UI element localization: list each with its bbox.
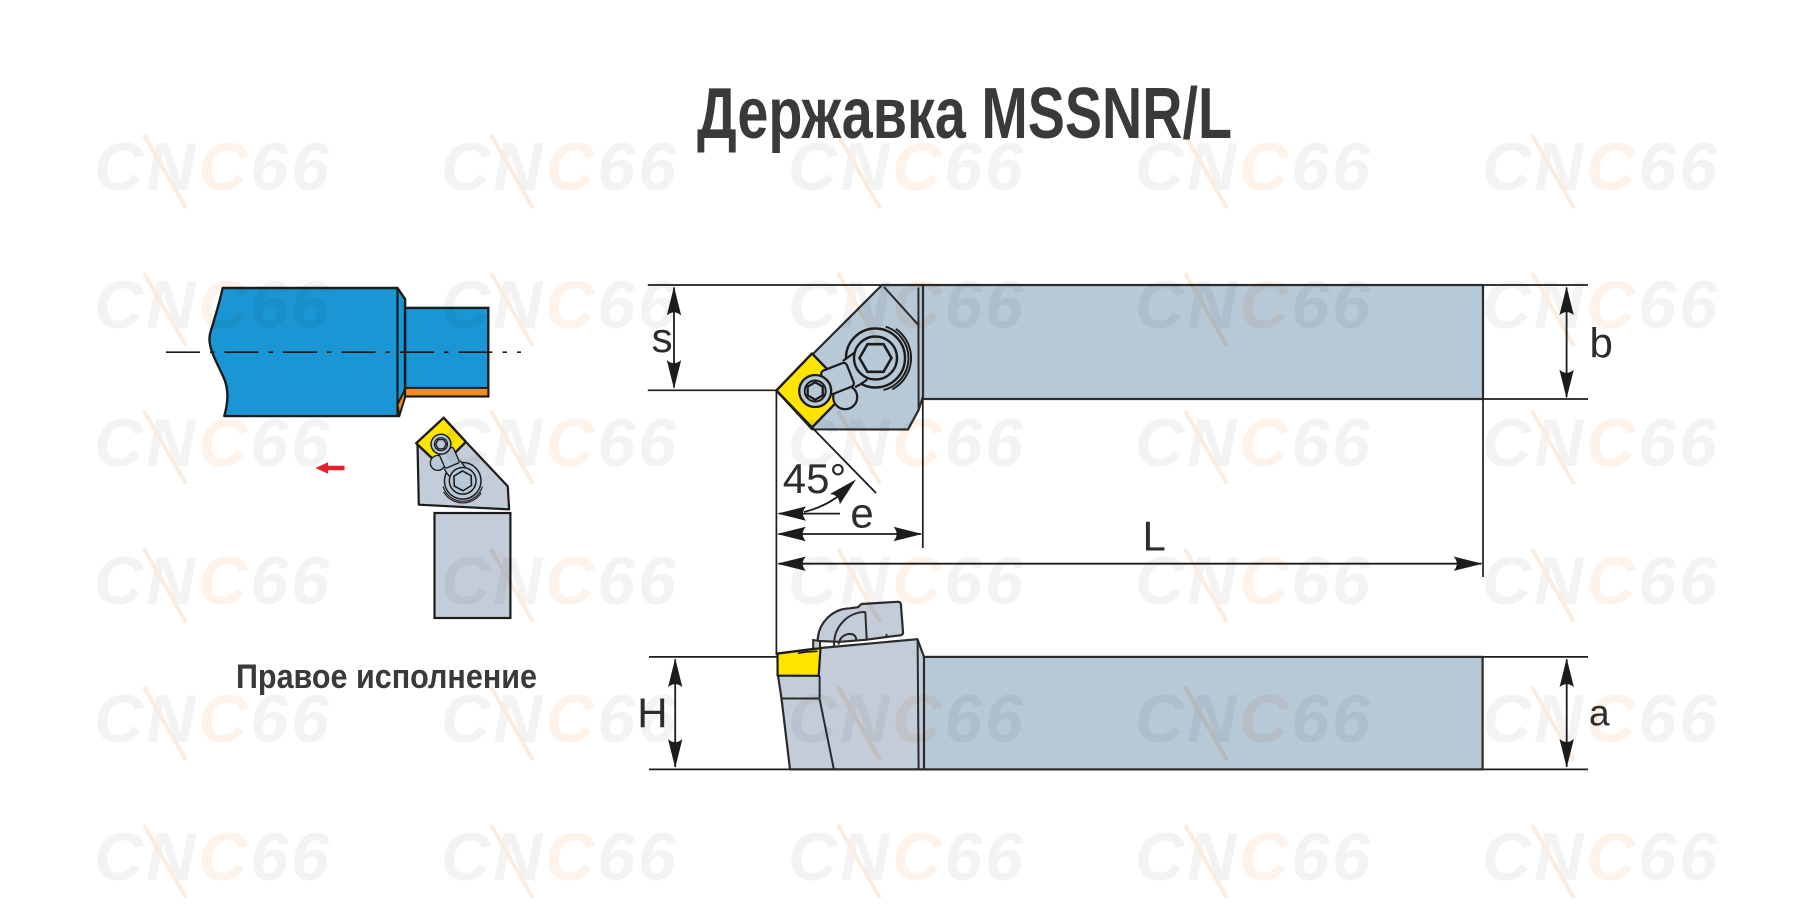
svg-text:CNC66: CNC66 [788, 681, 1026, 757]
svg-text:CNC66: CNC66 [441, 405, 679, 481]
svg-text:CNC66: CNC66 [1135, 681, 1373, 757]
svg-text:CNC66: CNC66 [94, 819, 332, 895]
svg-text:CNC66: CNC66 [788, 267, 1026, 343]
svg-text:CNC66: CNC66 [788, 543, 1026, 619]
svg-text:CNC66: CNC66 [1135, 543, 1373, 619]
svg-text:CNC66: CNC66 [1482, 405, 1720, 481]
svg-text:CNC66: CNC66 [1135, 819, 1373, 895]
svg-text:CNC66: CNC66 [1482, 129, 1720, 205]
svg-text:CNC66: CNC66 [1482, 681, 1720, 757]
svg-text:CNC66: CNC66 [1135, 267, 1373, 343]
svg-text:CNC66: CNC66 [788, 405, 1026, 481]
svg-text:CNC66: CNC66 [94, 129, 332, 205]
svg-text:CNC66: CNC66 [441, 267, 679, 343]
svg-text:CNC66: CNC66 [94, 681, 332, 757]
svg-text:CNC66: CNC66 [788, 819, 1026, 895]
svg-text:CNC66: CNC66 [1135, 405, 1373, 481]
svg-text:CNC66: CNC66 [94, 405, 332, 481]
svg-text:CNC66: CNC66 [94, 543, 332, 619]
svg-text:CNC66: CNC66 [1482, 819, 1720, 895]
svg-text:CNC66: CNC66 [788, 129, 1026, 205]
svg-text:CNC66: CNC66 [441, 819, 679, 895]
svg-text:CNC66: CNC66 [1482, 543, 1720, 619]
svg-text:e: e [850, 490, 873, 537]
svg-text:CNC66: CNC66 [441, 543, 679, 619]
svg-text:CNC66: CNC66 [441, 129, 679, 205]
svg-text:CNC66: CNC66 [94, 267, 332, 343]
svg-text:CNC66: CNC66 [441, 681, 679, 757]
svg-text:CNC66: CNC66 [1482, 267, 1720, 343]
svg-text:CNC66: CNC66 [1135, 129, 1373, 205]
